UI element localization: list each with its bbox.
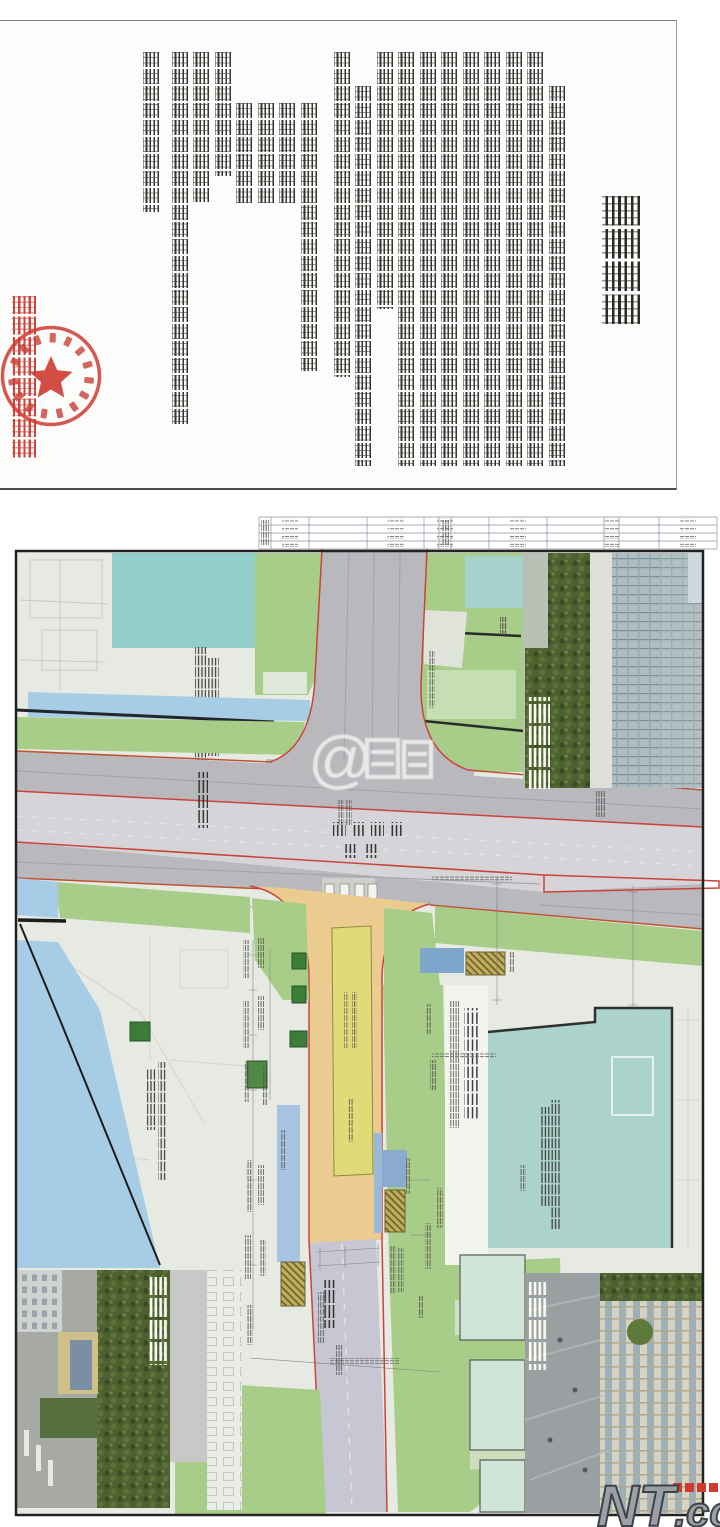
svg-text:@: @	[308, 723, 373, 795]
